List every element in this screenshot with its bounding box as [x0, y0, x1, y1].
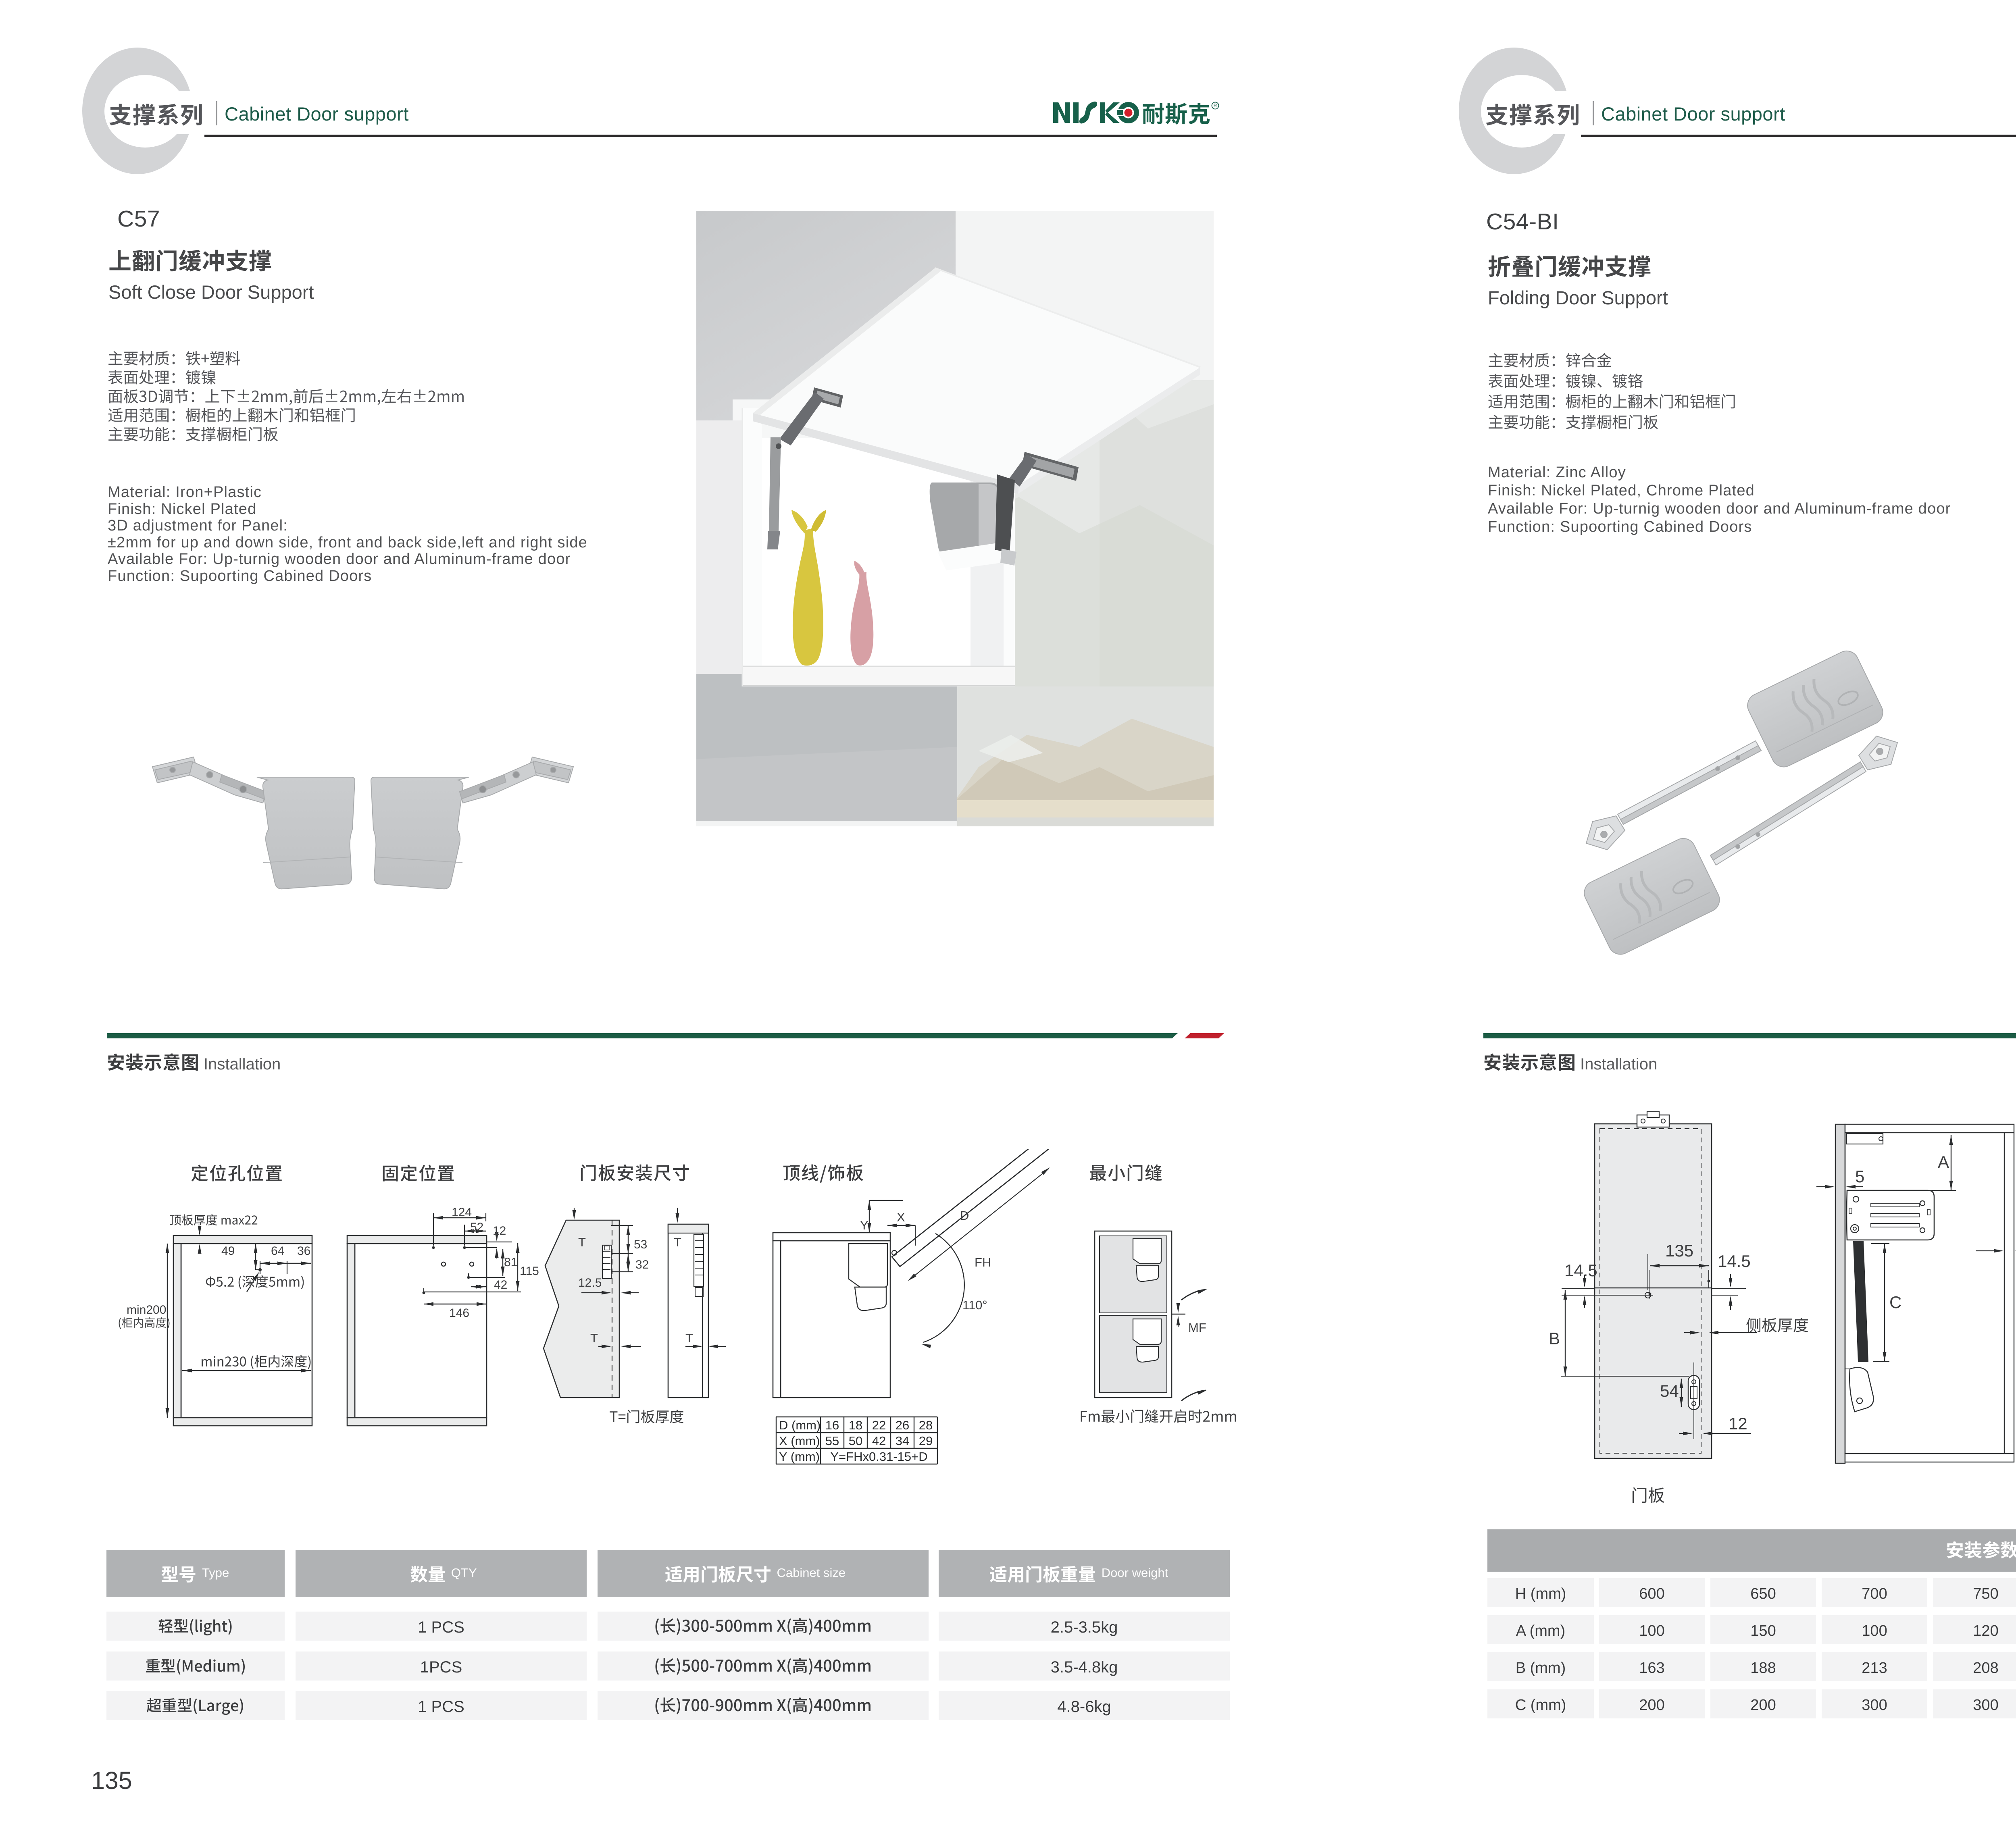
svg-text:28: 28: [919, 1418, 933, 1432]
svg-text:18: 18: [849, 1418, 862, 1432]
svg-text:55: 55: [825, 1434, 839, 1448]
svg-text:16: 16: [825, 1418, 839, 1432]
svg-text:26: 26: [896, 1418, 909, 1432]
svg-text:D (mm): D (mm): [779, 1418, 821, 1432]
svg-text:42: 42: [872, 1434, 886, 1448]
svg-text:Y (mm): Y (mm): [779, 1450, 820, 1464]
svg-text:50: 50: [849, 1434, 862, 1448]
svg-text:22: 22: [872, 1418, 886, 1432]
svg-text:R: R: [1214, 103, 1217, 108]
svg-text:Y=FHx0.31-15+D: Y=FHx0.31-15+D: [830, 1450, 927, 1464]
svg-text:34: 34: [896, 1434, 909, 1448]
svg-text:29: 29: [919, 1434, 933, 1448]
svg-text:X (mm): X (mm): [779, 1434, 820, 1448]
